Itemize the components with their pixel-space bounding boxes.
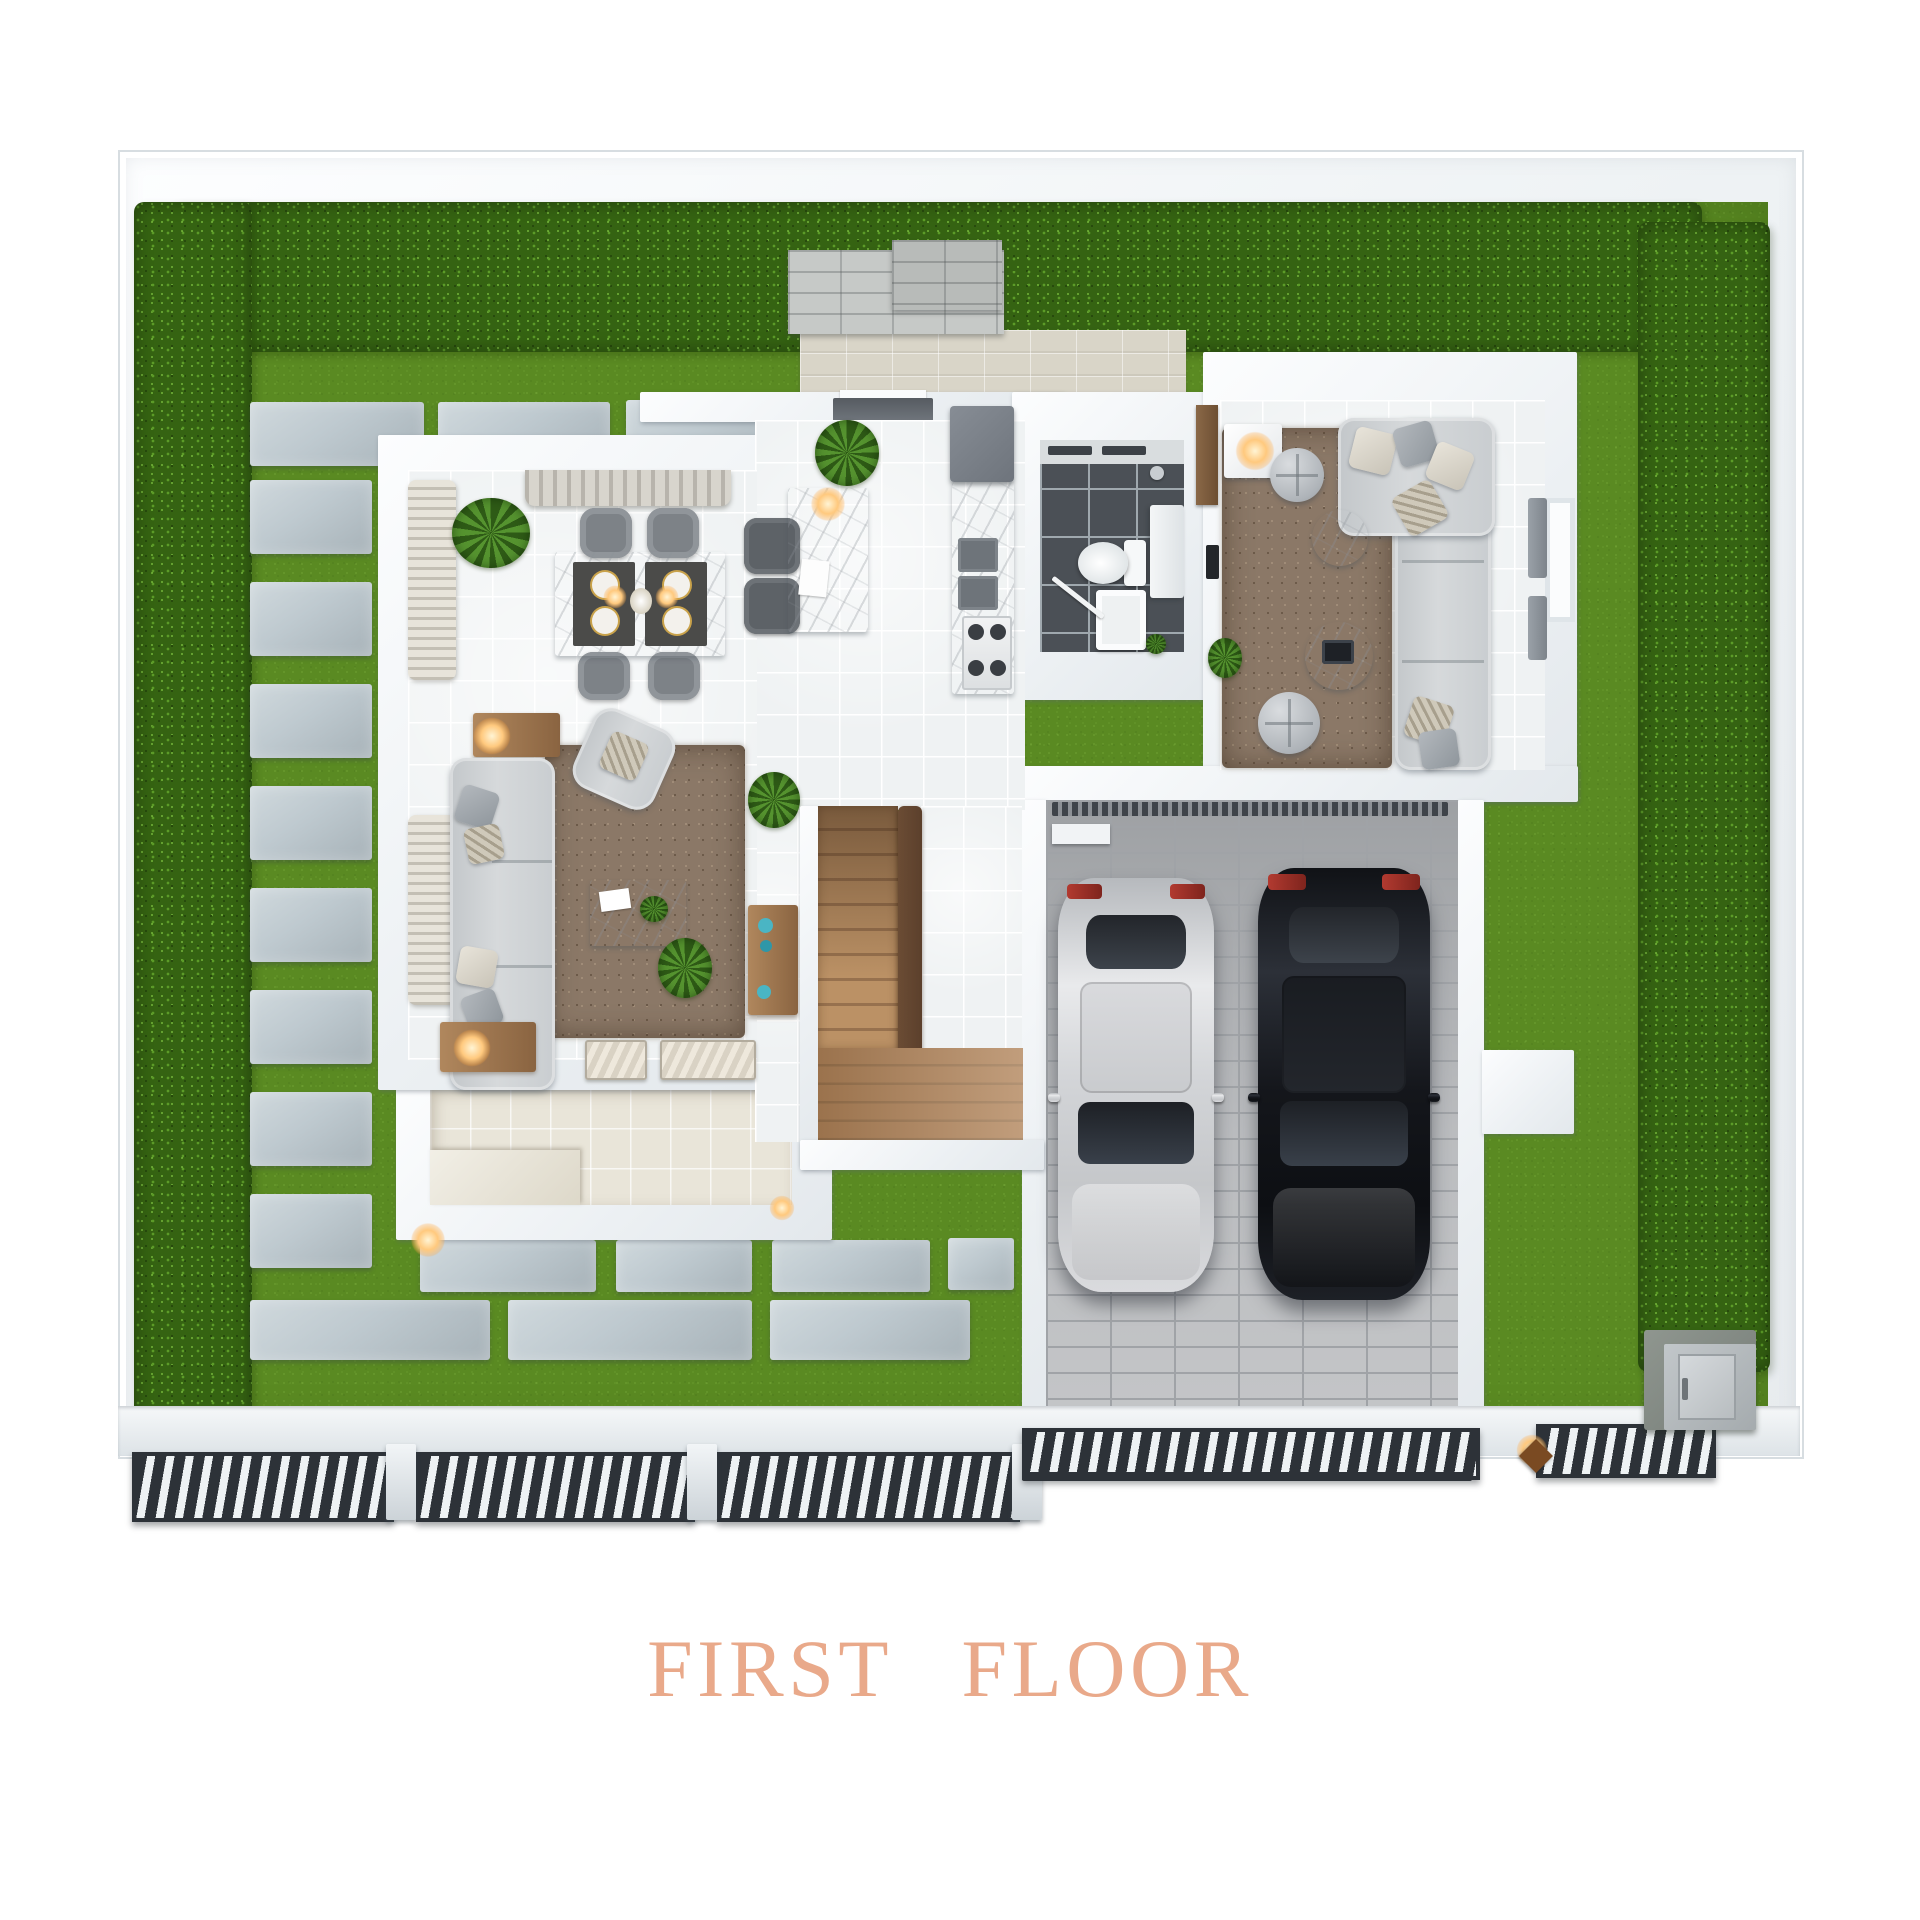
chandelier-light (652, 582, 682, 612)
fence-post (687, 1444, 717, 1520)
bath-plant (1146, 634, 1166, 654)
paving-slab (250, 990, 372, 1064)
burner (990, 624, 1006, 640)
garage-left-wall (1022, 800, 1046, 1450)
dining-plant (452, 498, 530, 568)
pendant-lamp-light (806, 482, 850, 526)
family-room-door (1196, 405, 1218, 505)
fence-panel (1536, 1424, 1716, 1478)
sink-basin (958, 576, 998, 610)
patio-sconce-light (406, 1218, 450, 1262)
car-roof (1282, 976, 1406, 1093)
car-rear-window (1289, 907, 1399, 963)
scene: FIRST FLOOR (0, 0, 1920, 1920)
car-mirror (1248, 1093, 1260, 1102)
paving-slab (948, 1238, 1014, 1290)
window-curtain (1528, 498, 1547, 578)
paving-slab (250, 582, 372, 656)
stair-shadow (818, 806, 898, 1050)
pillow (1418, 728, 1461, 771)
sofa-seam (1402, 560, 1484, 563)
gate-rail (1022, 1472, 1472, 1481)
sofa-seam (1402, 660, 1484, 663)
family-window (1545, 498, 1575, 622)
car-mirror (1048, 1093, 1060, 1102)
patio-sconce-light (766, 1192, 798, 1224)
car-taillight (1382, 874, 1420, 889)
paving-slab (250, 1092, 372, 1166)
paving-slab (772, 1240, 930, 1292)
coffee-table (590, 880, 686, 946)
table-lamp-light (448, 1024, 496, 1072)
patio-step (430, 1150, 580, 1205)
living-plant (748, 772, 800, 828)
sofa-seam (492, 860, 552, 863)
paving-slab (770, 1300, 970, 1360)
landing-bottom-wall (800, 1140, 1044, 1170)
paving-slab (250, 888, 372, 962)
car-mirror (1212, 1093, 1224, 1102)
dining-chair (648, 652, 700, 700)
living-curtain (408, 480, 456, 680)
fence-panel (132, 1452, 394, 1522)
dining-chair (580, 508, 632, 558)
dining-chair (647, 508, 699, 558)
paving-slab (508, 1300, 752, 1360)
car-taillight (1067, 884, 1101, 898)
car-windshield (1280, 1101, 1407, 1166)
blue-vase (760, 940, 772, 952)
table-plant (640, 896, 668, 922)
x-bench (660, 1040, 756, 1080)
hedge-right (1638, 222, 1770, 1372)
island-magazine (798, 559, 830, 598)
magazine (599, 888, 631, 912)
paving-slab (250, 480, 372, 554)
sink-basin (958, 538, 998, 572)
car-rear-window (1086, 915, 1186, 969)
paving-slab (250, 1300, 490, 1360)
burner (990, 660, 1006, 676)
toilet-bowl (1078, 542, 1128, 584)
wall-tv (1206, 545, 1219, 579)
pillow (463, 823, 506, 866)
black-car (1258, 868, 1430, 1300)
living-curtain (408, 815, 456, 1005)
car-windshield (1078, 1102, 1193, 1164)
dining-chair (578, 652, 630, 700)
hedge-left (134, 202, 252, 1448)
cabinet-handle (1682, 1378, 1688, 1400)
paving-slab (616, 1240, 752, 1292)
stair-side-wall (800, 806, 818, 1166)
burner (968, 624, 984, 640)
tablet (1322, 640, 1354, 664)
living-plant (658, 938, 712, 998)
yard-wall-stub (1482, 1050, 1574, 1134)
car-roof (1080, 982, 1192, 1094)
foyer-plant (815, 420, 879, 486)
garage-right-wall (1458, 800, 1484, 1448)
drain-strip (1052, 802, 1448, 816)
centerpiece-flowers (630, 588, 652, 614)
shower-tray (1096, 590, 1146, 650)
window-curtain (1528, 596, 1547, 660)
dining-window-valance (525, 470, 731, 506)
x-bench (585, 1040, 647, 1080)
car-hood (1072, 1184, 1200, 1279)
pillow (455, 945, 499, 989)
wood-console (748, 905, 798, 1015)
family-plant (1208, 638, 1242, 678)
sofa-seam (492, 965, 552, 968)
paving-slab (250, 1194, 372, 1268)
round-side-table (1312, 510, 1368, 566)
pouf (1270, 448, 1324, 502)
stair-handrail (898, 806, 922, 1056)
vent-grille (1048, 446, 1092, 455)
floor-plan-page: FIRST FLOOR (0, 0, 1920, 1920)
garage-wall-rack (1052, 824, 1110, 844)
landing-light (818, 1048, 1023, 1140)
vanity (1150, 505, 1184, 598)
shower-head (1150, 466, 1164, 480)
floor-plan-title: FIRST FLOOR (647, 1622, 1253, 1716)
car-hood (1273, 1188, 1414, 1287)
fence-panel (717, 1452, 1020, 1522)
car-taillight (1268, 874, 1306, 889)
chandelier-light (600, 582, 630, 612)
blue-vase (758, 918, 773, 933)
paving-slab (250, 786, 372, 860)
garden-stone-wall-upper (892, 240, 1002, 310)
car-taillight (1170, 884, 1204, 898)
fence-panel (416, 1452, 695, 1522)
table-lamp-light (468, 712, 516, 760)
burner (968, 660, 984, 676)
fence-post (386, 1444, 416, 1520)
vent-grille (1102, 446, 1146, 455)
silver-car (1058, 878, 1214, 1292)
garage-top-wall (1022, 766, 1578, 802)
hall-floor-by-stairs (921, 806, 1022, 1052)
blue-vase (757, 985, 771, 999)
pouf (1258, 692, 1320, 754)
paving-slab (250, 684, 372, 758)
car-mirror (1428, 1093, 1440, 1102)
refrigerator (950, 406, 1014, 482)
